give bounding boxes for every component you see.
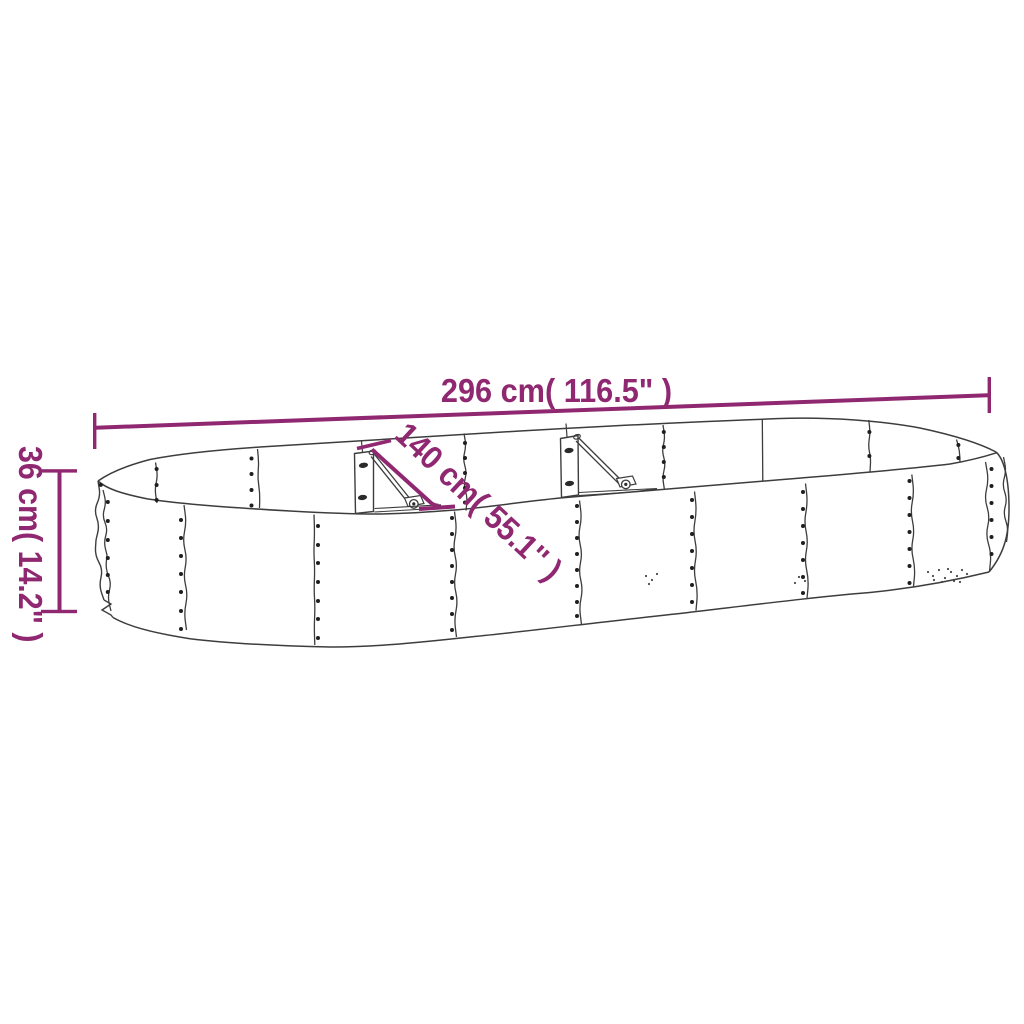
svg-text:36 cm( 14.2" ): 36 cm( 14.2" ) bbox=[12, 446, 49, 643]
svg-text:296 cm( 116.5" ): 296 cm( 116.5" ) bbox=[441, 372, 672, 409]
